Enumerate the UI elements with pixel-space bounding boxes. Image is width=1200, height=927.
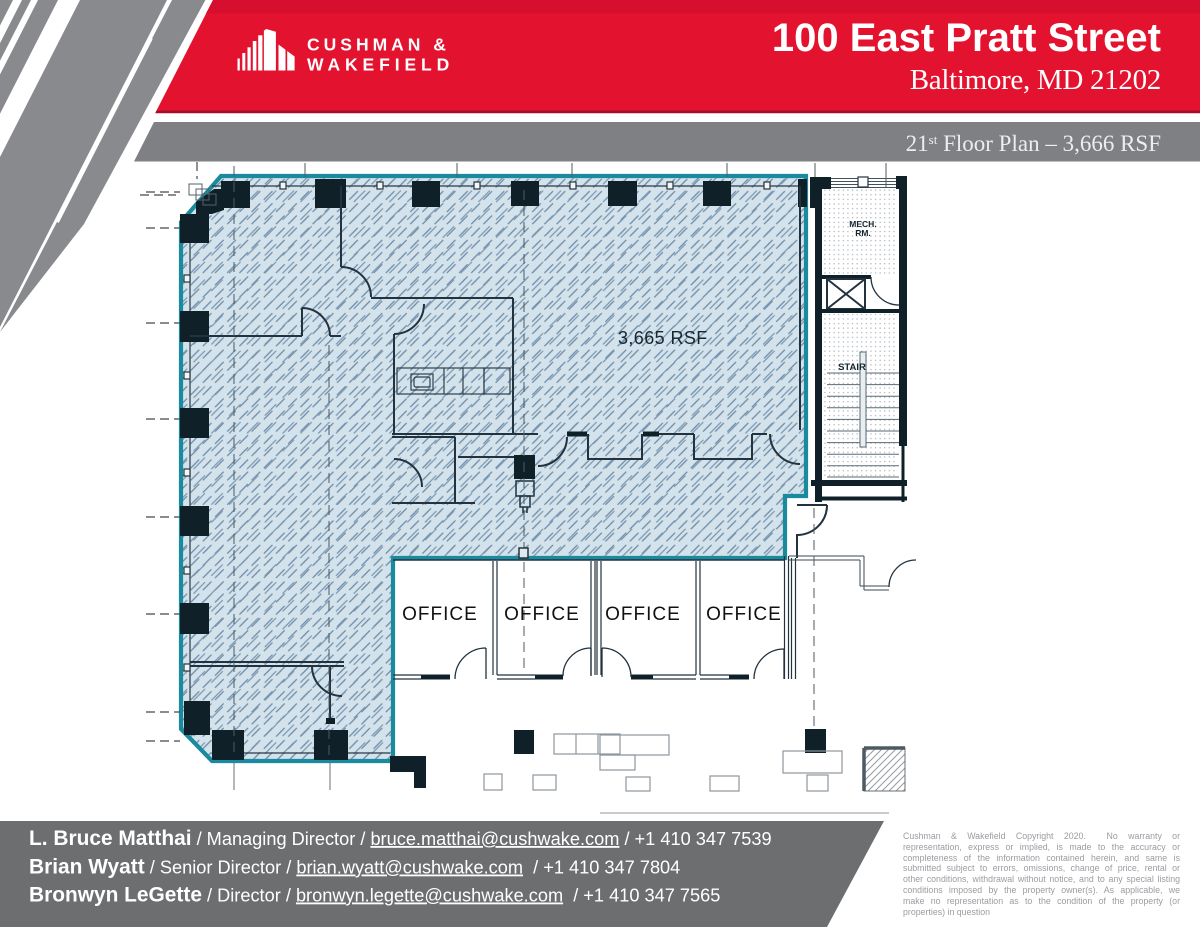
svg-text:3,665 RSF: 3,665 RSF — [618, 328, 708, 348]
svg-text:L. Bruce Matthai / Managing Di: L. Bruce Matthai / Managing Director / b… — [29, 827, 772, 850]
svg-text:WAKEFIELD: WAKEFIELD — [307, 54, 454, 74]
svg-text:21st Floor Plan – 3,666 RSF: 21st Floor Plan – 3,666 RSF — [906, 131, 1161, 156]
svg-text:OFFICE: OFFICE — [402, 604, 478, 625]
svg-text:Baltimore, MD 21202: Baltimore, MD 21202 — [910, 64, 1161, 96]
svg-text:Bronwyn LeGette / Director / b: Bronwyn LeGette / Director / bronwyn.leg… — [29, 884, 720, 907]
svg-text:OFFICE: OFFICE — [605, 604, 681, 625]
svg-text:OFFICE: OFFICE — [706, 604, 782, 625]
svg-text:RM.: RM. — [855, 228, 871, 238]
svg-text:OFFICE: OFFICE — [504, 604, 580, 625]
svg-text:100 East Pratt Street: 100 East Pratt Street — [772, 16, 1161, 60]
svg-text:STAIR: STAIR — [838, 362, 866, 373]
svg-text:Brian Wyatt / Senior Director: Brian Wyatt / Senior Director / brian.wy… — [29, 856, 680, 879]
svg-text:CUSHMAN &: CUSHMAN & — [307, 35, 450, 55]
